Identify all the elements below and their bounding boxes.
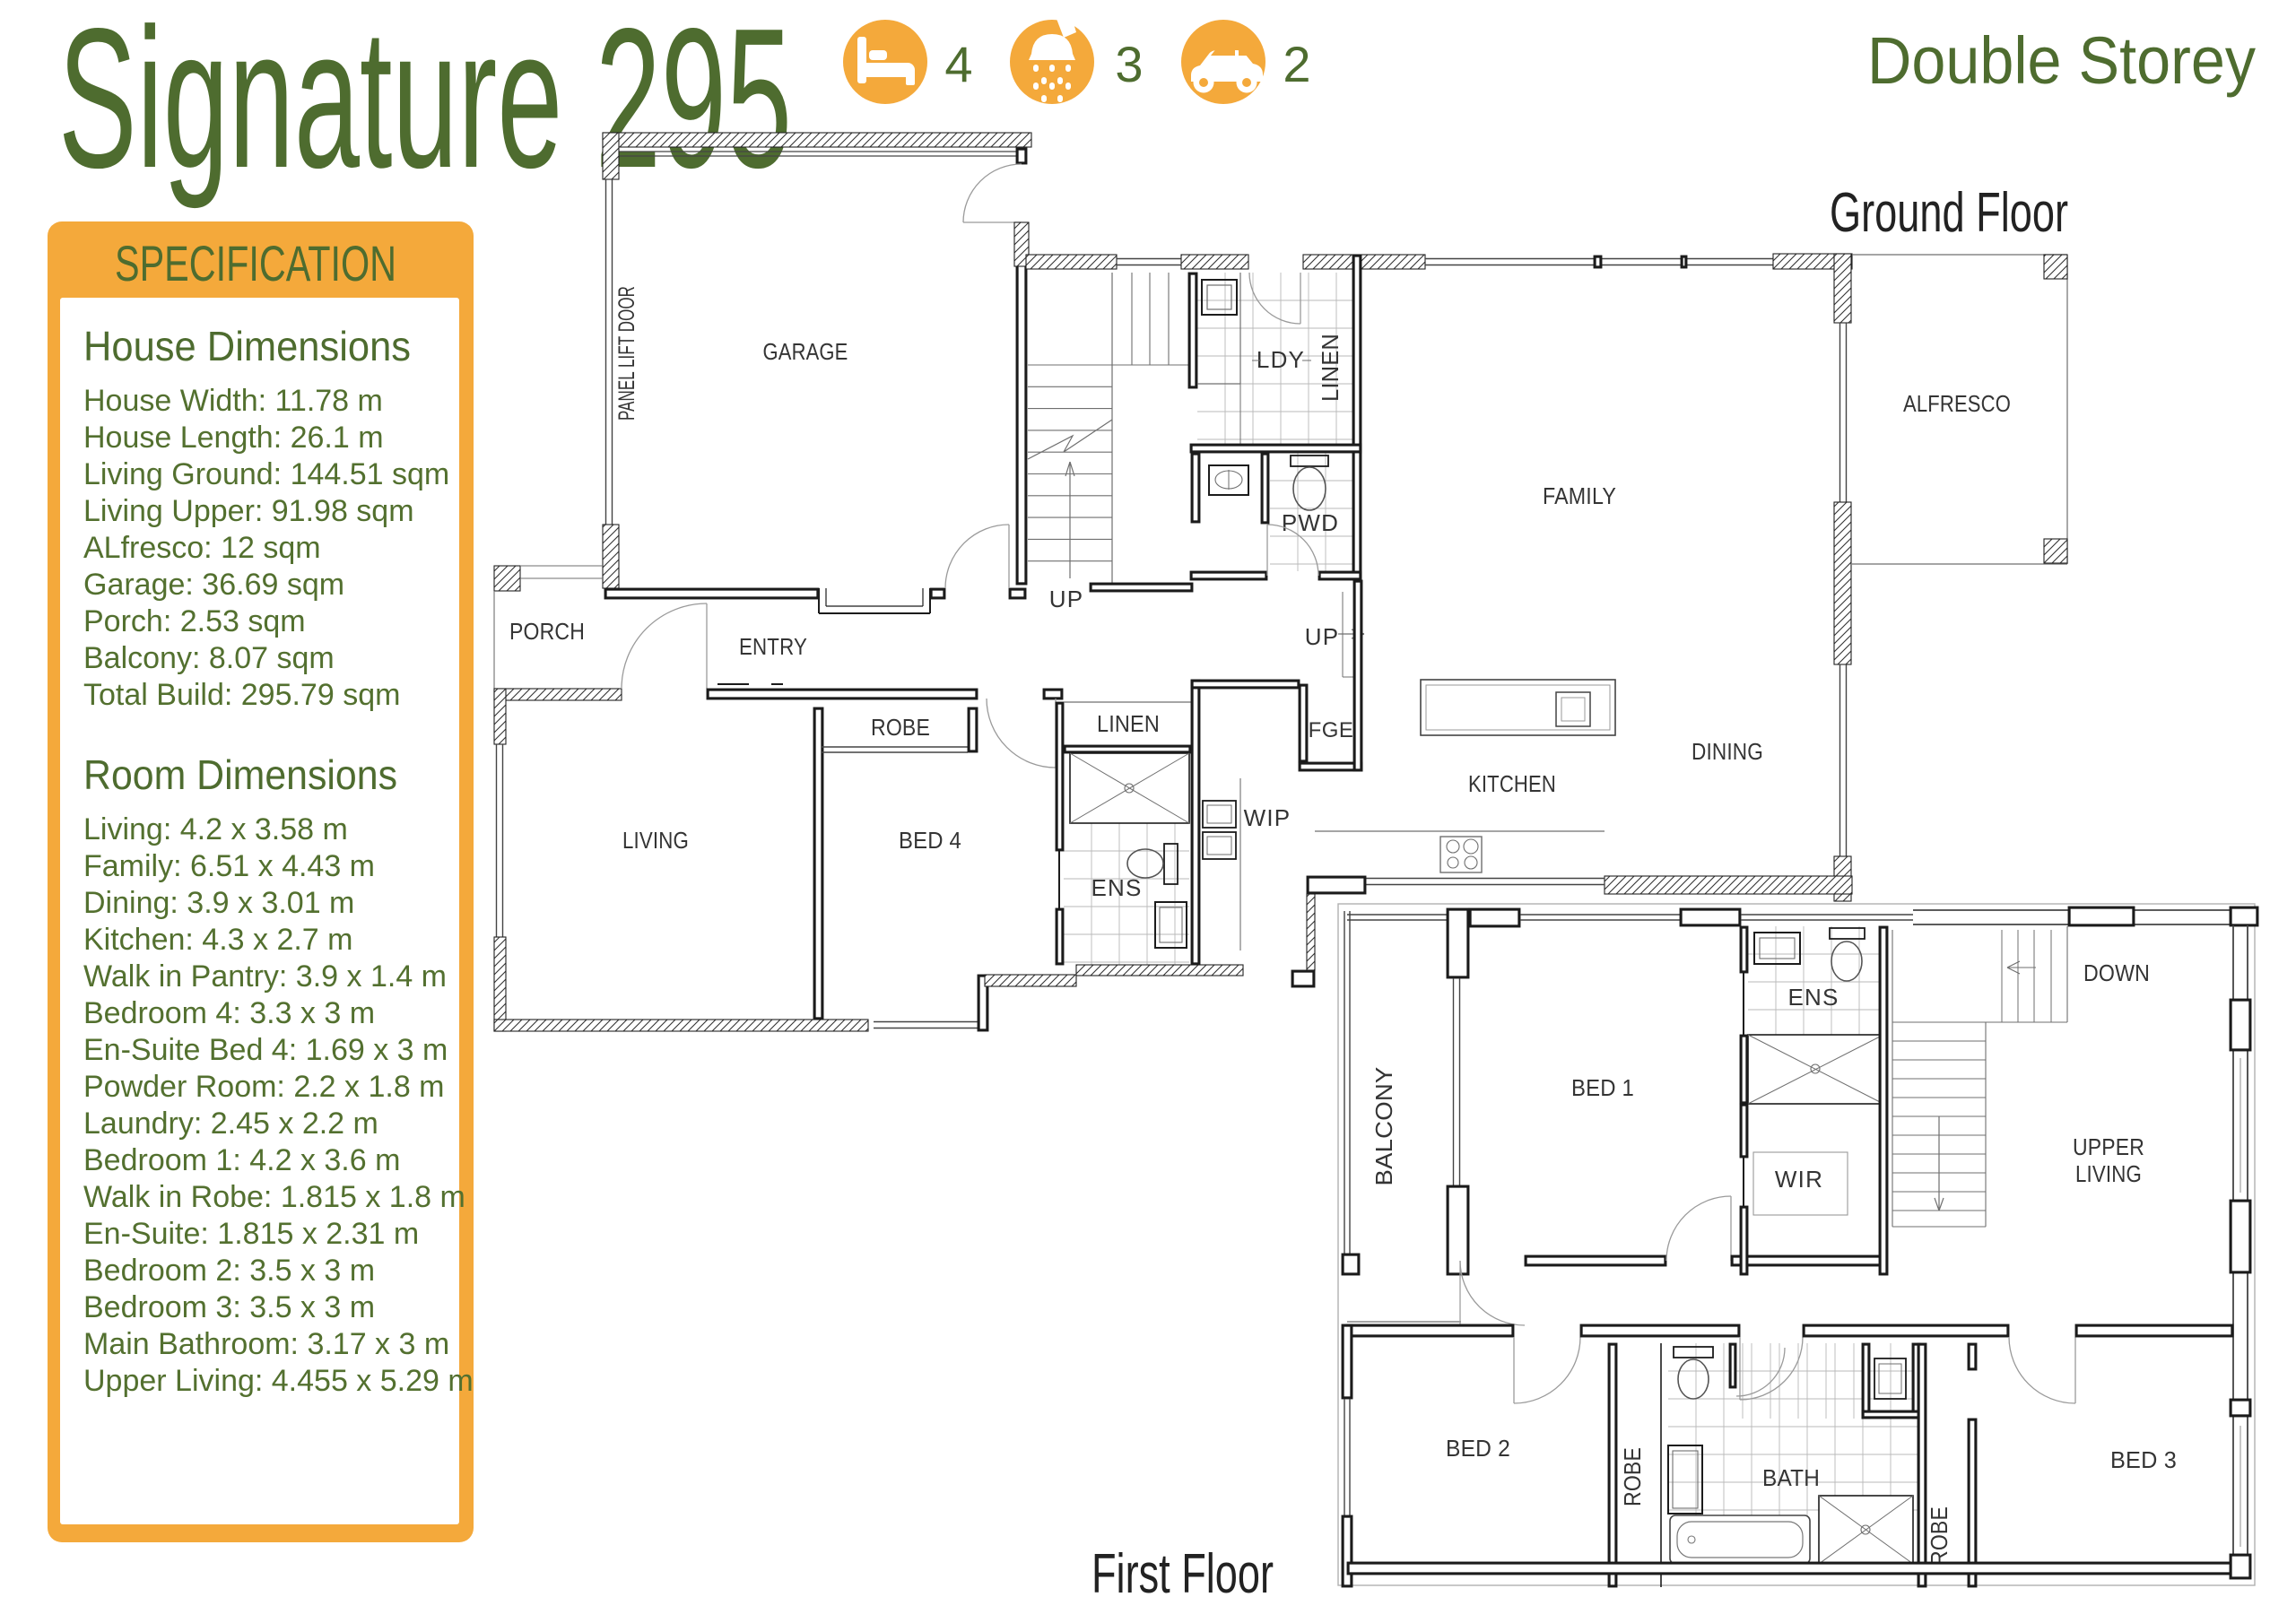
svg-text:Living Ground: 144.51 sqm: Living Ground: 144.51 sqm [83, 457, 449, 491]
svg-text:PWD: PWD [1282, 509, 1339, 536]
svg-text:3: 3 [1115, 36, 1143, 92]
svg-text:ENS: ENS [1091, 874, 1142, 901]
svg-text:Bedroom 2: 3.5 x 3 m: Bedroom 2: 3.5 x 3 m [83, 1254, 375, 1288]
svg-text:Bedroom 1: 4.2 x 3.6 m: Bedroom 1: 4.2 x 3.6 m [83, 1143, 400, 1177]
svg-text:House Width: 11.78 m: House Width: 11.78 m [83, 384, 383, 418]
svg-text:Main Bathroom: 3.17 x 3 m: Main Bathroom: 3.17 x 3 m [83, 1327, 449, 1361]
svg-text:LIVING: LIVING [622, 827, 689, 854]
svg-text:WIR: WIR [1775, 1166, 1823, 1193]
svg-text:BATH: BATH [1762, 1464, 1820, 1491]
svg-text:Living: 4.2 x 3.58 m: Living: 4.2 x 3.58 m [83, 812, 348, 846]
svg-text:PORCH: PORCH [509, 618, 585, 645]
svg-text:ALFRESCO: ALFRESCO [1903, 390, 2011, 417]
svg-text:FGE: FGE [1309, 718, 1354, 742]
svg-text:DOWN: DOWN [2083, 959, 2150, 986]
svg-text:Powder Room: 2.2 x 1.8 m: Powder Room: 2.2 x 1.8 m [83, 1070, 445, 1104]
svg-text:Bedroom 3: 3.5 x 3 m: Bedroom 3: 3.5 x 3 m [83, 1290, 375, 1324]
svg-text:Laundry: 2.45 x 2.2 m: Laundry: 2.45 x 2.2 m [83, 1107, 378, 1141]
svg-text:SPECIFICATION: SPECIFICATION [115, 235, 396, 291]
svg-text:ALfresco: 12 sqm: ALfresco: 12 sqm [83, 531, 321, 565]
svg-text:Room Dimensions: Room Dimensions [83, 751, 397, 798]
svg-text:PANEL LIFT DOOR: PANEL LIFT DOOR [614, 286, 639, 421]
svg-text:Walk in Pantry: 3.9 x 1.4 m: Walk in Pantry: 3.9 x 1.4 m [83, 959, 447, 994]
svg-text:KITCHEN: KITCHEN [1468, 770, 1556, 797]
svg-text:ROBE: ROBE [871, 714, 930, 741]
svg-text:UP: UP [1305, 623, 1340, 650]
svg-text:UP: UP [1049, 586, 1084, 612]
svg-text:LIVING: LIVING [2075, 1160, 2142, 1187]
svg-text:Total Build: 295.79 sqm: Total Build: 295.79 sqm [83, 678, 400, 712]
svg-text:Balcony: 8.07 sqm: Balcony: 8.07 sqm [83, 641, 335, 675]
svg-text:Family: 6.51 x 4.43 m: Family: 6.51 x 4.43 m [83, 849, 375, 883]
svg-text:BED 1: BED 1 [1571, 1074, 1634, 1101]
svg-text:Walk in Robe: 1.815 x 1.8 m: Walk in Robe: 1.815 x 1.8 m [83, 1180, 465, 1214]
svg-text:LDY: LDY [1257, 346, 1305, 373]
svg-text:BED 2: BED 2 [1446, 1435, 1510, 1462]
svg-text:4: 4 [944, 36, 972, 92]
svg-text:Double Storey: Double Storey [1867, 23, 2256, 98]
svg-text:DINING: DINING [1692, 738, 1763, 765]
svg-text:BALCONY: BALCONY [1370, 1067, 1397, 1186]
svg-text:LINEN: LINEN [1317, 334, 1344, 402]
svg-text:House Length: 26.1 m: House Length: 26.1 m [83, 421, 384, 455]
svg-text:Bedroom 4: 3.3 x 3 m: Bedroom 4: 3.3 x 3 m [83, 996, 375, 1030]
svg-text:Kitchen: 4.3 x 2.7 m: Kitchen: 4.3 x 2.7 m [83, 923, 353, 957]
svg-text:En-Suite: 1.815 x 2.31 m: En-Suite: 1.815 x 2.31 m [83, 1217, 419, 1251]
svg-text:ENTRY: ENTRY [739, 633, 807, 660]
svg-text:UPPER: UPPER [2073, 1133, 2144, 1160]
svg-text:ROBE: ROBE [1619, 1447, 1646, 1506]
svg-text:ROBE: ROBE [1926, 1506, 1952, 1566]
svg-text:First Floor: First Floor [1091, 1543, 1274, 1605]
svg-text:Porch: 2.53 sqm: Porch: 2.53 sqm [83, 604, 306, 638]
svg-text:2: 2 [1283, 36, 1310, 92]
svg-text:En-Suite Bed 4: 1.69 x 3 m: En-Suite Bed 4: 1.69 x 3 m [83, 1033, 448, 1067]
svg-text:ENS: ENS [1787, 984, 1839, 1011]
svg-text:LINEN: LINEN [1097, 710, 1160, 737]
svg-text:FAMILY: FAMILY [1543, 482, 1616, 509]
svg-text:GARAGE: GARAGE [763, 338, 848, 365]
svg-text:Living Upper: 91.98 sqm: Living Upper: 91.98 sqm [83, 494, 414, 528]
svg-text:Ground Floor: Ground Floor [1830, 182, 2068, 244]
svg-text:Garage: 36.69 sqm: Garage: 36.69 sqm [83, 568, 344, 602]
svg-text:Upper Living: 4.455 x 5.29 m: Upper Living: 4.455 x 5.29 m [83, 1364, 474, 1398]
svg-text:BED 4: BED 4 [899, 827, 961, 854]
svg-text:BED 3: BED 3 [2110, 1446, 2177, 1473]
svg-text:House Dimensions: House Dimensions [83, 323, 411, 369]
svg-text:Dining: 3.9 x 3.01 m: Dining: 3.9 x 3.01 m [83, 886, 354, 920]
svg-text:Signature 295: Signature 295 [58, 0, 792, 210]
svg-text:WIP: WIP [1244, 804, 1291, 831]
